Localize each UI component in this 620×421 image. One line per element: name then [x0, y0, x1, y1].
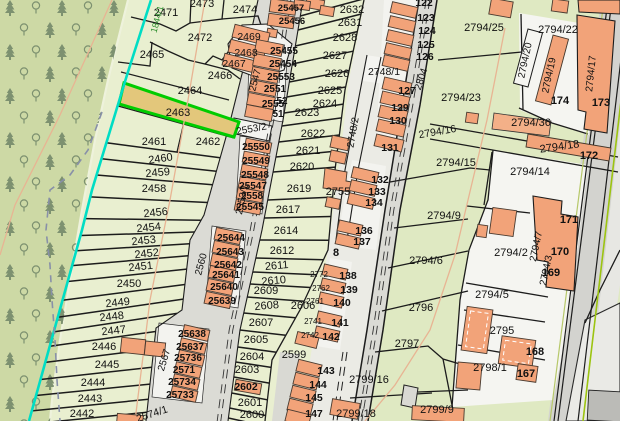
svg-text:2627: 2627 [323, 50, 347, 62]
svg-text:2621: 2621 [296, 145, 320, 157]
svg-text:2604: 2604 [240, 351, 264, 363]
svg-text:132: 132 [371, 174, 389, 186]
svg-text:2445: 2445 [95, 359, 119, 371]
svg-text:2443: 2443 [78, 393, 102, 405]
svg-text:2463: 2463 [166, 107, 190, 119]
svg-text:2469: 2469 [237, 31, 261, 43]
svg-text:25457: 25457 [278, 3, 304, 14]
svg-text:2465: 2465 [140, 49, 164, 61]
svg-text:2772: 2772 [310, 270, 328, 279]
svg-text:2620: 2620 [290, 161, 314, 173]
svg-text:2600: 2600 [240, 409, 264, 421]
svg-text:2797: 2797 [395, 338, 419, 350]
svg-text:2609: 2609 [254, 285, 278, 297]
svg-text:25455: 25455 [270, 46, 298, 57]
svg-text:134: 134 [365, 197, 383, 209]
svg-text:2599: 2599 [282, 349, 306, 361]
svg-text:2461: 2461 [142, 136, 166, 148]
svg-text:2799/18: 2799/18 [336, 408, 376, 420]
svg-text:2742: 2742 [301, 331, 319, 340]
svg-text:2462: 2462 [196, 136, 220, 148]
svg-text:2446: 2446 [92, 341, 116, 353]
svg-text:2798/1: 2798/1 [473, 362, 507, 374]
svg-text:2794/5: 2794/5 [475, 289, 509, 301]
svg-text:2799/16: 2799/16 [349, 374, 389, 386]
svg-text:144: 144 [309, 379, 327, 391]
svg-text:2794/2: 2794/2 [494, 247, 528, 259]
svg-text:2450: 2450 [117, 278, 141, 290]
svg-text:2472: 2472 [188, 32, 212, 44]
svg-text:2631: 2631 [338, 17, 362, 29]
svg-text:2447: 2447 [101, 324, 127, 338]
svg-text:143: 143 [317, 365, 335, 377]
svg-text:131: 131 [381, 142, 399, 154]
svg-text:174: 174 [551, 95, 570, 107]
svg-text:2623: 2623 [295, 107, 319, 119]
svg-text:2474: 2474 [233, 4, 257, 16]
svg-text:2626: 2626 [325, 68, 349, 80]
svg-text:2602: 2602 [234, 381, 258, 393]
svg-text:2794/14: 2794/14 [510, 166, 550, 178]
svg-text:25637: 25637 [176, 342, 204, 353]
svg-text:25639: 25639 [208, 296, 236, 307]
svg-text:137: 137 [353, 236, 371, 248]
svg-text:2794/23: 2794/23 [441, 92, 481, 104]
svg-text:2755: 2755 [326, 186, 350, 198]
svg-text:2619: 2619 [287, 183, 311, 195]
svg-text:25734: 25734 [168, 377, 196, 388]
svg-text:2551: 2551 [264, 84, 287, 95]
svg-text:2794/22: 2794/22 [538, 24, 578, 36]
svg-text:2466: 2466 [208, 70, 232, 82]
svg-text:2611: 2611 [264, 259, 289, 273]
svg-text:2794/15: 2794/15 [436, 157, 476, 169]
svg-text:173: 173 [592, 97, 610, 109]
svg-text:25454: 25454 [269, 59, 297, 70]
svg-text:2628: 2628 [333, 32, 357, 44]
svg-text:25638: 25638 [178, 329, 206, 340]
svg-text:2473: 2473 [190, 0, 214, 10]
svg-text:2794/36: 2794/36 [511, 117, 551, 129]
svg-text:2794/25: 2794/25 [464, 22, 504, 34]
svg-text:25550: 25550 [242, 142, 270, 153]
svg-text:25644: 25644 [217, 233, 245, 244]
svg-text:142: 142 [322, 331, 340, 343]
svg-text:124: 124 [418, 25, 436, 37]
svg-text:168: 168 [526, 346, 544, 358]
svg-text:2453: 2453 [131, 234, 157, 248]
svg-text:2607: 2607 [249, 317, 273, 329]
svg-text:2451: 2451 [128, 260, 154, 274]
svg-text:25640: 25640 [210, 282, 238, 293]
svg-text:2795: 2795 [490, 325, 514, 337]
svg-text:2605: 2605 [244, 334, 268, 346]
svg-text:141: 141 [331, 317, 349, 329]
svg-text:2603: 2603 [235, 364, 259, 376]
svg-text:25549: 25549 [242, 156, 270, 167]
svg-text:2452: 2452 [134, 247, 160, 261]
svg-text:2761: 2761 [306, 297, 324, 306]
svg-text:2464: 2464 [178, 85, 202, 97]
svg-text:139: 139 [340, 284, 358, 296]
svg-text:25641: 25641 [212, 270, 240, 281]
svg-text:2449: 2449 [105, 296, 131, 310]
svg-text:2794/6: 2794/6 [409, 255, 443, 267]
svg-text:2571: 2571 [173, 365, 196, 376]
svg-text:129: 129 [391, 102, 409, 114]
svg-text:2632: 2632 [340, 4, 364, 16]
svg-text:2456: 2456 [143, 206, 169, 220]
svg-text:8: 8 [333, 247, 339, 259]
svg-text:2459: 2459 [145, 166, 170, 180]
svg-text:145: 145 [305, 392, 323, 404]
svg-text:2748/1: 2748/1 [368, 66, 400, 78]
svg-text:2458: 2458 [142, 183, 166, 195]
svg-text:25548: 25548 [241, 170, 269, 181]
svg-text:172: 172 [580, 150, 598, 162]
svg-text:2467: 2467 [222, 58, 246, 70]
svg-text:138: 138 [339, 270, 357, 282]
svg-text:2622: 2622 [301, 128, 325, 140]
svg-text:2625: 2625 [318, 85, 342, 97]
svg-text:171: 171 [560, 214, 578, 226]
svg-text:2601: 2601 [238, 397, 262, 409]
svg-text:122: 122 [415, 0, 433, 9]
svg-text:2741: 2741 [304, 317, 322, 326]
svg-text:2762: 2762 [312, 284, 330, 293]
svg-text:2442: 2442 [70, 408, 94, 420]
svg-text:2794/9: 2794/9 [427, 210, 461, 222]
svg-text:25736: 25736 [174, 353, 202, 364]
svg-text:2612: 2612 [270, 245, 294, 257]
svg-text:25733: 25733 [166, 390, 194, 401]
svg-text:130: 130 [389, 115, 407, 127]
svg-text:140: 140 [333, 297, 351, 309]
svg-text:167: 167 [517, 368, 535, 380]
svg-text:51: 51 [272, 109, 284, 120]
svg-text:2444: 2444 [81, 377, 105, 389]
svg-text:25553: 25553 [267, 72, 295, 83]
svg-text:2454: 2454 [136, 221, 162, 235]
svg-text:25643: 25643 [216, 247, 244, 258]
svg-text:2608: 2608 [254, 299, 279, 313]
svg-text:2799/9: 2799/9 [420, 404, 454, 416]
svg-text:170: 170 [551, 246, 569, 258]
svg-text:123: 123 [417, 12, 435, 24]
svg-text:126: 126 [416, 51, 434, 63]
svg-text:125: 125 [417, 39, 435, 51]
svg-text:2796: 2796 [409, 302, 433, 314]
svg-text:25456: 25456 [279, 16, 305, 27]
svg-text:2617: 2617 [276, 204, 300, 216]
svg-text:2614: 2614 [274, 225, 298, 237]
svg-text:147: 147 [305, 408, 323, 420]
svg-text:2448: 2448 [99, 310, 125, 324]
